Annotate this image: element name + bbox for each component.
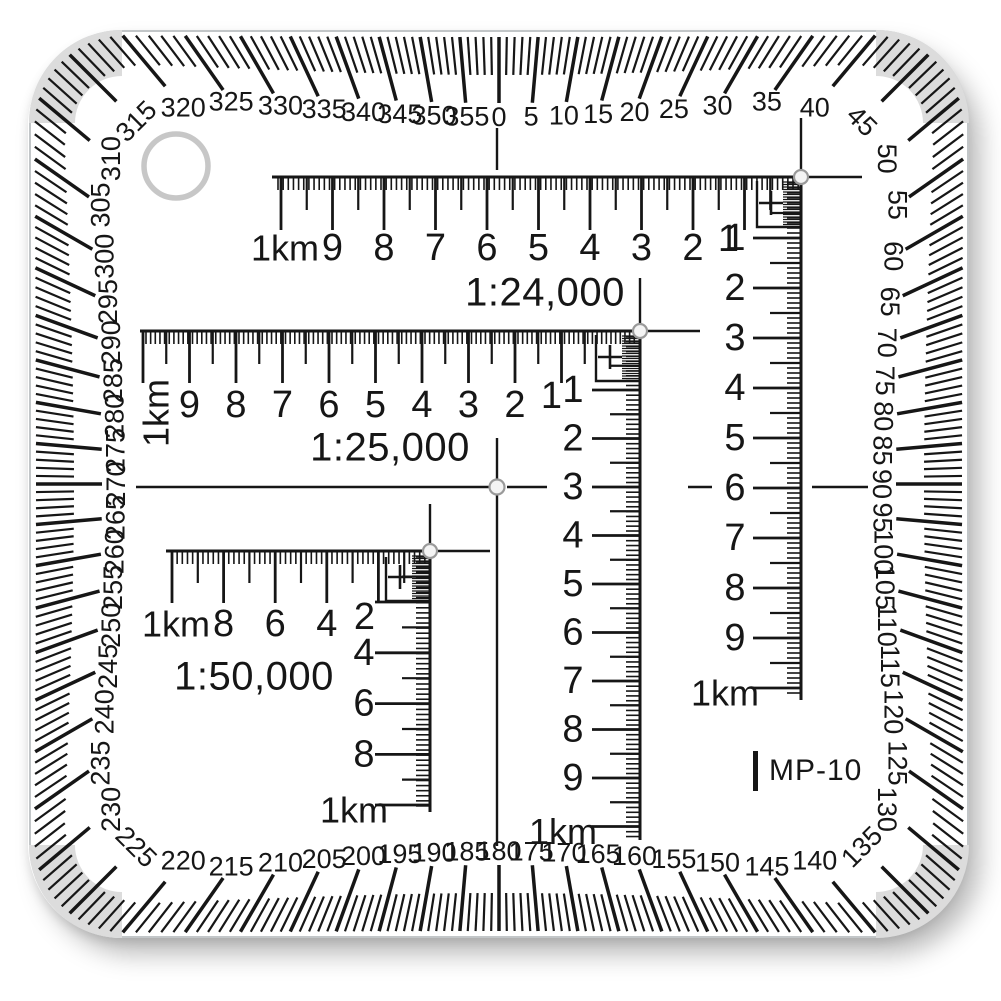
svg-text:1: 1 [541,375,562,417]
svg-text:6: 6 [562,612,583,654]
svg-text:150: 150 [695,848,740,878]
svg-text:3: 3 [631,227,652,269]
model-text: MP-10 [769,754,862,788]
svg-text:7: 7 [272,384,293,426]
scale-label-25000: 1:25,000 [310,426,470,471]
svg-text:4: 4 [411,384,432,426]
svg-text:15: 15 [583,99,613,129]
svg-text:7: 7 [562,660,583,702]
svg-text:335: 335 [302,94,347,124]
svg-text:95: 95 [867,503,897,533]
svg-text:7: 7 [724,517,745,559]
svg-text:0: 0 [491,102,506,132]
svg-text:140: 140 [792,845,837,875]
svg-text:50: 50 [872,144,902,174]
svg-text:325: 325 [209,86,254,116]
svg-text:35: 35 [752,86,782,116]
svg-text:55: 55 [883,190,913,220]
scale-label-24000: 1:24,000 [465,271,625,316]
svg-text:65: 65 [875,287,905,317]
svg-text:125: 125 [883,741,913,786]
svg-text:8: 8 [213,603,234,645]
svg-text:240: 240 [89,689,119,734]
svg-text:245: 245 [93,644,123,689]
svg-text:90: 90 [867,469,897,499]
svg-text:155: 155 [651,844,696,874]
svg-text:9: 9 [322,227,343,269]
svg-text:305: 305 [85,182,115,227]
svg-text:9: 9 [562,757,583,799]
protractor-drawing: 0510152025303540455055606570758085909510… [0,0,1001,1001]
svg-text:320: 320 [161,93,206,123]
svg-text:70: 70 [872,328,902,358]
svg-text:8: 8 [562,709,583,751]
svg-text:215: 215 [209,852,254,882]
svg-text:7: 7 [425,227,446,269]
svg-text:1km: 1km [320,790,388,831]
svg-text:80: 80 [868,401,898,431]
svg-text:20: 20 [619,97,649,127]
svg-text:1km: 1km [136,379,177,447]
svg-text:2: 2 [724,267,745,309]
svg-text:9: 9 [724,617,745,659]
ruler-corner-hole [633,324,647,338]
svg-text:310: 310 [96,136,126,181]
svg-text:5: 5 [365,384,386,426]
svg-text:4: 4 [724,367,745,409]
svg-text:3: 3 [724,317,745,359]
svg-text:120: 120 [879,689,909,734]
svg-text:1km: 1km [251,228,319,269]
ruler-corner-hole [423,544,437,558]
svg-text:115: 115 [875,645,905,688]
svg-text:290: 290 [96,320,126,365]
svg-text:4: 4 [579,227,600,269]
svg-text:1km: 1km [529,811,597,852]
svg-text:110: 110 [872,604,902,647]
svg-text:2: 2 [562,418,583,460]
svg-text:6: 6 [353,683,374,725]
model-bar [753,751,758,791]
svg-text:6: 6 [265,603,286,645]
svg-text:1km: 1km [691,673,759,714]
model-label: MP-10 [753,751,862,791]
svg-text:8: 8 [353,733,374,775]
ruler-corner-hole [794,170,808,184]
svg-text:3: 3 [458,384,479,426]
protractor-product-photo: 0510152025303540455055606570758085909510… [0,0,1001,1001]
svg-text:2: 2 [504,384,525,426]
svg-text:235: 235 [85,741,115,786]
svg-text:60: 60 [879,241,909,271]
svg-text:25: 25 [659,94,689,124]
svg-text:1: 1 [724,217,745,259]
svg-text:130: 130 [872,787,902,832]
svg-text:9: 9 [179,384,200,426]
svg-text:1km: 1km [142,604,210,645]
svg-text:8: 8 [373,227,394,269]
svg-text:4: 4 [316,603,337,645]
svg-text:40: 40 [800,93,830,123]
svg-text:330: 330 [258,90,303,120]
svg-text:8: 8 [225,384,246,426]
svg-text:5: 5 [724,417,745,459]
svg-text:10: 10 [549,101,579,131]
svg-text:4: 4 [562,515,583,557]
svg-text:3: 3 [562,466,583,508]
svg-text:1: 1 [562,369,583,411]
svg-text:75: 75 [870,366,900,396]
svg-text:5: 5 [562,563,583,605]
svg-text:8: 8 [724,567,745,609]
svg-text:200: 200 [341,841,386,871]
svg-text:5: 5 [528,227,549,269]
center-hole [490,480,505,495]
svg-text:355: 355 [444,102,489,132]
svg-text:145: 145 [744,852,789,882]
svg-text:300: 300 [89,234,119,279]
svg-text:30: 30 [703,90,733,120]
svg-text:220: 220 [161,845,206,875]
scale-label-50000: 1:50,000 [174,655,334,700]
svg-text:230: 230 [96,787,126,832]
svg-text:6: 6 [476,227,497,269]
svg-text:4: 4 [353,632,374,674]
svg-text:85: 85 [867,435,897,465]
svg-text:295: 295 [93,279,123,324]
svg-text:210: 210 [258,848,303,878]
svg-text:6: 6 [724,467,745,509]
svg-text:2: 2 [682,227,703,269]
svg-text:6: 6 [318,384,339,426]
svg-text:5: 5 [524,102,539,132]
svg-text:205: 205 [302,844,347,874]
